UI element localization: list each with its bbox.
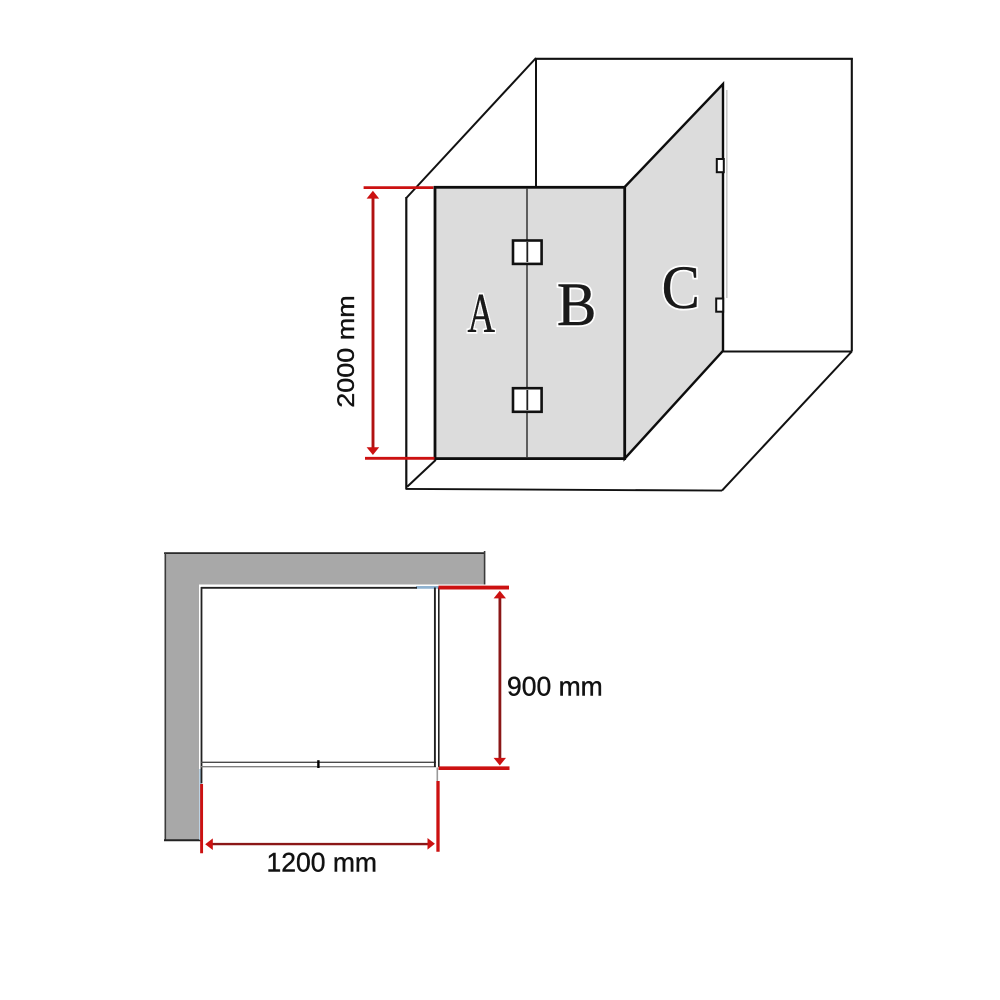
svg-text:1200 mm: 1200 mm [267, 847, 377, 877]
svg-text:B: B [557, 271, 596, 339]
svg-text:900 mm: 900 mm [507, 672, 603, 702]
svg-text:2000 mm: 2000 mm [334, 295, 360, 408]
svg-text:A: A [468, 283, 496, 345]
svg-text:C: C [662, 253, 700, 321]
